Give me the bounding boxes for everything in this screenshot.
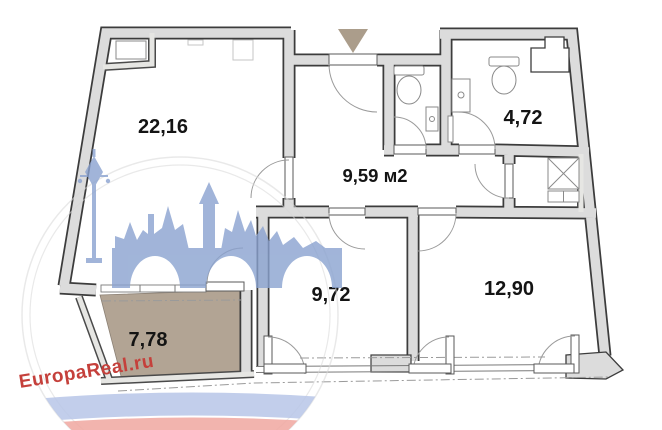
- window-threshold-1: [264, 364, 306, 373]
- floor-plan: 22,16 9,59 м2 4,72 9,72 12,90 7,78: [0, 0, 662, 430]
- sink-icon: [426, 107, 438, 131]
- watermark-site-label: EuropaReal.ru: [17, 351, 155, 393]
- furniture-mark: [233, 40, 253, 60]
- bedroom2-door: [418, 208, 456, 215]
- window-threshold-2: [409, 364, 451, 373]
- shaft-icon: [548, 158, 579, 202]
- wc-door: [394, 145, 426, 154]
- room-label-terrace: 7,78: [129, 329, 168, 351]
- entrance-arrow-icon: [338, 29, 368, 53]
- niche: [116, 41, 146, 59]
- entrance-door: [329, 54, 377, 65]
- terrace-door: [206, 282, 244, 291]
- window-threshold-3: [534, 364, 574, 373]
- room-label-bathroom: 4,72: [504, 107, 543, 129]
- closet-door: [505, 164, 513, 198]
- room-label-living: 22,16: [138, 116, 188, 138]
- toilet-icon: [394, 66, 424, 104]
- living-room-door: [285, 157, 293, 199]
- floor-plan-page: 22,16 9,59 м2 4,72 9,72 12,90 7,78: [0, 0, 662, 430]
- room-label-bedroom: 9,72: [312, 284, 351, 306]
- wall-notch: [531, 37, 569, 72]
- room-label-bedroom2: 12,90: [484, 278, 534, 300]
- room-label-hallway: 9,59 м2: [342, 165, 407, 186]
- bathroom-door: [459, 145, 495, 154]
- furniture-mark-2: [188, 40, 203, 45]
- bedroom-door: [329, 208, 365, 215]
- toilet-icon-2: [489, 57, 519, 94]
